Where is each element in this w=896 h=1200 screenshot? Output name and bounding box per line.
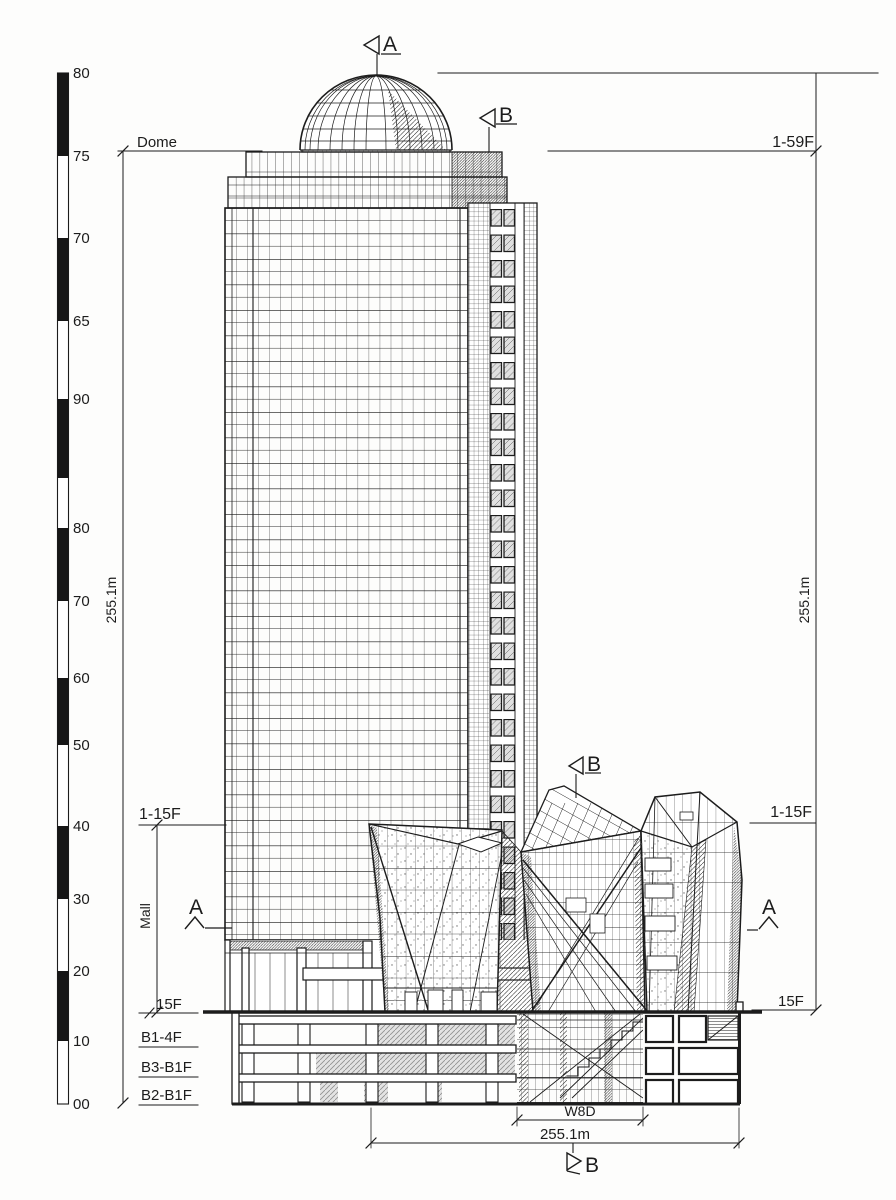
scale-label: 75 — [73, 148, 90, 165]
dome-level-label: Dome — [137, 134, 177, 151]
scale-label: 10 — [73, 1033, 90, 1050]
scale-label: 00 — [73, 1096, 90, 1113]
podium-floors-right-label: 1-15F — [770, 804, 812, 821]
scale-label: 90 — [73, 391, 90, 408]
height-dim-right: 255.1m — [796, 577, 812, 624]
scale-label: 50 — [73, 737, 90, 754]
core-below-grade — [517, 1012, 643, 1104]
basement-b2-b1f-label: B2-B1F — [141, 1087, 192, 1104]
scale-label: 65 — [73, 313, 90, 330]
height-dim-left: 255.1m — [103, 577, 119, 624]
section-marker-a-top-label: A — [383, 33, 397, 56]
mall-left-crystal — [369, 824, 502, 1012]
section-marker-b-mid-label: B — [587, 753, 601, 776]
section-marker-b-top-label: B — [499, 104, 513, 127]
section-marker-a-right-label: A — [762, 896, 776, 919]
mall-right-crystal — [641, 792, 742, 1012]
scale-label: 70 — [73, 593, 90, 610]
scale-label: 80 — [73, 520, 90, 537]
building-elevation-svg: 80 75 70 65 90 80 70 60 50 40 30 20 10 0… — [0, 0, 896, 1200]
basement-b1-4f-label: B1-4F — [141, 1029, 182, 1046]
basement-left-wall — [232, 1012, 239, 1104]
scale-label: 60 — [73, 670, 90, 687]
section-marker-b-bottom-label: B — [585, 1154, 599, 1177]
ground-level-left-label: 15F — [156, 996, 182, 1013]
tower-floors-label: 1-59F — [772, 134, 814, 151]
overall-width-label: 255.1m — [540, 1126, 590, 1143]
podium-floors-left-label: 1-15F — [139, 806, 181, 823]
mall-dim-label: Mall — [137, 903, 153, 929]
scale-label: 30 — [73, 891, 90, 908]
ground-level-right-label: 15F — [778, 993, 804, 1010]
scale-label: 20 — [73, 963, 90, 980]
basement-b3-b1f-label: B3-B1F — [141, 1059, 192, 1076]
scale-label: 80 — [73, 65, 90, 82]
section-marker-a-left-label: A — [189, 896, 203, 919]
scale-label: 40 — [73, 818, 90, 835]
core-width-label: W8D — [564, 1103, 595, 1119]
architectural-elevation-page: 80 75 70 65 90 80 70 60 50 40 30 20 10 0… — [0, 0, 896, 1200]
scale-label: 70 — [73, 230, 90, 247]
